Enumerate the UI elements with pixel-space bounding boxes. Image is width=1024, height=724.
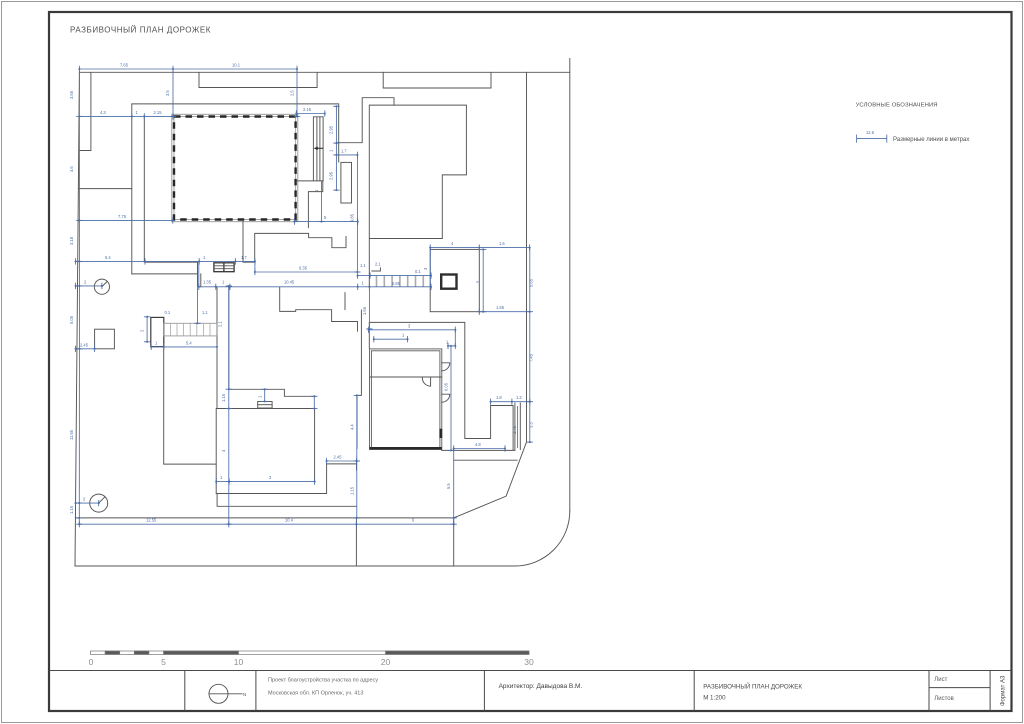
svg-text:4: 4	[221, 449, 226, 452]
svg-text:1.1: 1.1	[360, 263, 366, 268]
svg-text:1: 1	[258, 395, 263, 398]
svg-text:3.55: 3.55	[69, 90, 74, 99]
svg-text:3: 3	[423, 267, 428, 270]
svg-text:Формат А3: Формат А3	[1001, 675, 1007, 706]
svg-text:1: 1	[155, 341, 158, 346]
svg-text:5.4: 5.4	[105, 255, 111, 260]
svg-text:6.35: 6.35	[299, 266, 308, 271]
svg-text:Лист: Лист	[934, 677, 947, 683]
svg-text:1: 1	[314, 189, 319, 192]
svg-text:1.15: 1.15	[349, 486, 354, 495]
svg-text:УСЛОВНЫЕ ОБОЗНАЧЕНИЯ: УСЛОВНЫЕ ОБОЗНАЧЕНИЯ	[856, 103, 938, 109]
svg-text:1.85: 1.85	[496, 305, 505, 310]
svg-text:Московская обл. КП Орленок, уч: Московская обл. КП Орленок, уч. 413	[268, 691, 363, 697]
svg-text:1: 1	[136, 110, 139, 115]
svg-text:1: 1	[220, 475, 223, 480]
svg-text:5: 5	[476, 280, 481, 283]
svg-text:1: 1	[446, 339, 449, 344]
svg-text:6: 6	[412, 518, 415, 523]
svg-text:7.45: 7.45	[529, 353, 534, 362]
svg-text:1.7: 1.7	[241, 255, 247, 260]
svg-text:1.6: 1.6	[499, 241, 505, 246]
svg-text:2.15: 2.15	[154, 110, 163, 115]
svg-text:4.8: 4.8	[475, 442, 481, 447]
svg-text:1.65: 1.65	[362, 306, 367, 315]
svg-text:10.1: 10.1	[232, 63, 241, 68]
svg-text:3.5: 3.5	[165, 90, 170, 96]
svg-text:9.85: 9.85	[350, 213, 355, 222]
svg-text:2.1: 2.1	[375, 262, 381, 267]
svg-text:1.2: 1.2	[516, 395, 522, 400]
svg-text:Размерные линии в метрах: Размерные линии в метрах	[893, 137, 969, 143]
svg-text:1: 1	[203, 255, 206, 260]
svg-text:2.95: 2.95	[328, 125, 333, 134]
svg-text:Проект благоустройства участка: Проект благоустройства участка по адресу	[268, 677, 378, 684]
svg-text:5.5: 5.5	[446, 483, 451, 489]
svg-text:2: 2	[140, 329, 145, 332]
svg-text:5.85: 5.85	[392, 281, 401, 286]
svg-text:0.1: 0.1	[415, 269, 421, 274]
svg-text:1: 1	[362, 280, 365, 285]
svg-text:Архитектор: Давыдова В.М.: Архитектор: Давыдова В.М.	[499, 683, 583, 690]
svg-text:10.4: 10.4	[285, 518, 294, 523]
svg-text:20: 20	[381, 657, 391, 667]
svg-text:2.15: 2.15	[303, 107, 312, 112]
svg-text:5.4: 5.4	[186, 341, 192, 346]
svg-text:5.05: 5.05	[69, 315, 74, 324]
svg-text:1.35: 1.35	[203, 280, 212, 285]
svg-text:1.15: 1.15	[69, 505, 74, 514]
svg-text:3.18: 3.18	[69, 236, 74, 245]
svg-text:12.6: 12.6	[866, 130, 875, 135]
svg-text:1: 1	[402, 333, 405, 338]
svg-text:М 1:200: М 1:200	[703, 695, 726, 702]
svg-text:2.1: 2.1	[218, 321, 223, 327]
svg-text:4: 4	[451, 241, 454, 246]
svg-text:2.45: 2.45	[80, 342, 89, 347]
svg-text:Листов: Листов	[934, 696, 954, 702]
svg-text:1.75: 1.75	[512, 425, 517, 434]
svg-text:0.1: 0.1	[165, 310, 171, 315]
svg-text:1: 1	[328, 149, 333, 152]
svg-text:12.55: 12.55	[146, 518, 157, 523]
svg-text:30: 30	[524, 657, 534, 667]
svg-text:6.05: 6.05	[444, 382, 449, 391]
svg-text:1.8: 1.8	[496, 395, 502, 400]
svg-text:2: 2	[83, 497, 86, 502]
svg-text:11.55: 11.55	[69, 429, 74, 440]
svg-text:10.45: 10.45	[284, 280, 295, 285]
svg-text:0: 0	[89, 657, 94, 667]
svg-text:3: 3	[408, 323, 411, 328]
svg-text:2.5: 2.5	[290, 90, 295, 96]
svg-text:7.65: 7.65	[120, 63, 129, 68]
svg-text:2.95: 2.95	[328, 171, 333, 180]
svg-text:2: 2	[84, 279, 87, 284]
svg-text:4.6: 4.6	[69, 166, 74, 172]
svg-text:3.3: 3.3	[529, 422, 534, 428]
svg-text:N: N	[243, 692, 246, 697]
svg-text:10: 10	[234, 657, 244, 667]
svg-text:5: 5	[161, 657, 166, 667]
svg-text:2.45: 2.45	[334, 455, 343, 460]
svg-text:1.15: 1.15	[221, 393, 226, 402]
svg-text:7.75: 7.75	[118, 214, 127, 219]
svg-text:РАЗБИВОЧНЫЙ ПЛАН ДОРОЖЕК: РАЗБИВОЧНЫЙ ПЛАН ДОРОЖЕК	[703, 683, 802, 691]
svg-text:3: 3	[269, 475, 272, 480]
svg-text:4.3: 4.3	[100, 110, 106, 115]
svg-text:1.1: 1.1	[202, 310, 208, 315]
svg-text:4.4: 4.4	[349, 424, 354, 430]
svg-text:5: 5	[324, 215, 327, 220]
svg-text:1.7: 1.7	[341, 148, 347, 153]
svg-text:РАЗБИВОЧНЫЙ ПЛАН ДОРОЖЕК: РАЗБИВОЧНЫЙ ПЛАН ДОРОЖЕК	[70, 26, 211, 35]
svg-text:1: 1	[222, 280, 225, 285]
svg-text:5.65: 5.65	[529, 278, 534, 287]
